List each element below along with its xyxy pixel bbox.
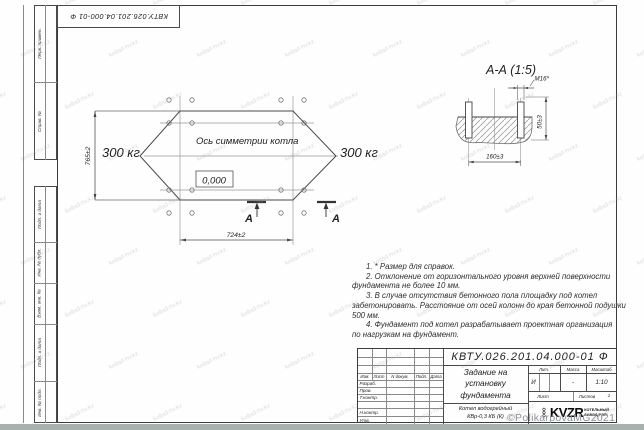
dim-160: 160±3 [469,154,521,167]
tb-row-utv: Утв. [358,416,386,424]
load-right-label: 300 кг [340,145,378,160]
axis-symmetry-label: Ось симметрии котла [196,136,298,147]
section-marker-left: А [244,202,266,225]
drawing-sheet: КВТУ.026.201.04.000-01 Ф Перв. примен. С… [0,0,644,430]
tb-col-list: Лист [372,373,386,380]
tb-massa-value: - [560,373,586,391]
notes-block: 1. * Размер для справок. 2. Отклонение о… [352,262,604,340]
dim-50-text: 50±3 [537,115,544,129]
tb-listov-value: 1 [601,391,617,401]
bolt-hole [167,211,171,215]
tb-doc-title-line1: Задание на [464,367,508,379]
tb-massa-label: Масса [560,365,586,373]
note-line: фундамента не более 10 мм. [352,281,604,291]
note-line: по нагрузкам на фундамент. [352,330,604,340]
dim-m16-text: М16* [535,76,550,83]
note-line: 2. Отклонение от горизонтального уровня … [352,272,604,282]
note-line: 3. В случае отсутствия бетонного пола пл… [352,291,604,301]
bolt-hole [279,98,283,102]
tb-product-line1: Котел водогрейный [459,406,512,414]
section-title: А-А (1:5) [485,63,536,77]
copyright-watermark: ©PolikarpovaMG2021 [507,412,615,424]
bottom-page-strip [0,424,644,430]
tb-masshtab-label: Масштаб [586,365,617,373]
note-line: забетонировать. Расстояние от осей колон… [352,301,604,311]
section-view: А-А (1:5) М16* [456,63,550,166]
tb-doc-title-line3: фундамента [460,390,510,402]
tb-col-ndocum: N докум. [386,373,414,380]
tb-list-label: Лист [528,391,558,401]
foundation-outline [140,111,336,200]
dim-m16: М16* [508,76,550,101]
note-line: 1. * Размер для справок. [352,262,604,272]
dim-724-text: 724±2 [227,232,246,239]
tb-lit-label: Лит. [528,365,560,373]
tb-listov-label: Листов [573,391,601,401]
bolt-hole [190,98,194,102]
bolt-hole [279,211,283,215]
tb-designation-text: КВТУ.026.201.04.000-01 Ф [451,351,608,363]
level-mark-text: 0,000 [202,176,226,187]
section-marker-right: А [317,202,340,225]
tb-row-tkontr: Т.контр. [358,394,386,401]
tb-row-prov: Пров. [358,387,386,394]
anchor-bolt-left [466,102,473,138]
load-left-label: 300 кг [102,145,140,160]
bolt-hole [302,211,306,215]
tb-col-data: Дата [429,373,443,380]
anchor-bolt-right [518,102,525,138]
tb-product-line2: КВр-0,3 КБ (К) [467,414,504,422]
bolt-hole [167,98,171,102]
tb-designation: КВТУ.026.201.04.000-01 Ф [443,349,617,365]
section-letter-left: А [244,213,253,225]
note-line: 500 мм. [352,311,604,321]
bolt-hole [190,211,194,215]
dim-724: 724±2 [180,232,293,241]
dim-765-text: 765±2 [85,146,92,165]
tb-row-razrab: Разраб. [358,380,386,387]
tb-doc-title: Задание на установку фундамента [443,365,528,403]
tb-col-podp: Подп. [414,373,429,380]
tb-row-nkontr: Н.контр. [358,408,386,416]
bolt-hole [302,98,306,102]
plan-view: 765±2 724±2 Ось симметрии котла 300 кг 3… [85,96,378,245]
section-letter-right: А [331,213,340,225]
tb-doc-title-line2: установку [465,378,506,390]
note-line: 4. Фундамент под котел разрабатывает про… [352,320,604,330]
tb-col-izm: Изм. [358,373,372,380]
tb-lit-value: И [528,373,539,391]
tb-masshtab-value: 1:10 [586,373,617,391]
dim-160-text: 160±3 [486,154,504,161]
